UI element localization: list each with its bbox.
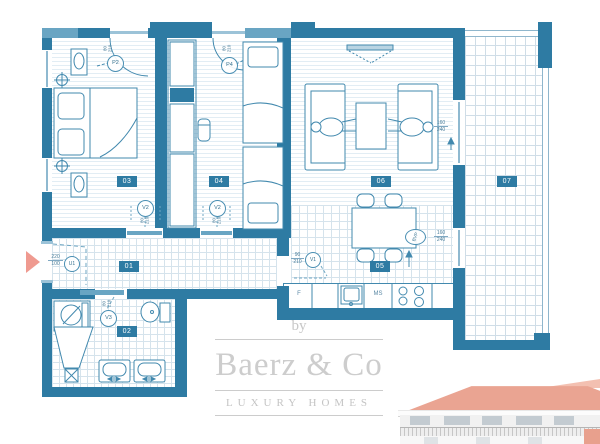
fridge-label: F — [291, 291, 307, 297]
wall-segment — [78, 28, 110, 38]
brand-watermark: by Baerz & Co LUXURY HOMES — [213, 316, 385, 419]
brand-prefix: by — [213, 316, 385, 336]
dim-v2-b: 80 210 — [212, 212, 223, 230]
dim-width: 160 — [434, 120, 448, 127]
marker-p2: P2 — [107, 55, 124, 72]
brand-rule — [215, 415, 383, 416]
brand-name: Baerz & Co — [213, 343, 385, 387]
dim-v1: 90 210 — [291, 252, 304, 265]
building-window — [528, 437, 542, 444]
window-top-bedroom-04 — [245, 28, 291, 38]
marker-v1: V1 — [305, 252, 321, 268]
dim-p2: 80 210 — [103, 40, 114, 58]
entrance-door-frame — [41, 241, 53, 244]
dim-height: 210 — [107, 295, 112, 313]
room-label-06: 06 — [371, 176, 391, 187]
terrace-wall-bottom — [453, 340, 550, 350]
sliding-door-v2-bedroom-04 — [201, 231, 232, 235]
wall-segment — [233, 228, 291, 238]
wall-segment — [42, 283, 52, 397]
dim-height: 240 — [434, 237, 448, 243]
dim-bvp: 160 240 — [434, 230, 448, 243]
building-window — [516, 416, 542, 425]
wall-segment — [52, 228, 126, 238]
window-glass-line — [46, 159, 48, 191]
marker-bvp: BVP — [405, 229, 426, 245]
dim-width: 220 — [48, 254, 63, 261]
wall-segment — [42, 88, 52, 158]
terrace-railing-right — [542, 30, 549, 333]
wall-segment — [291, 28, 465, 38]
wall-segment — [127, 289, 287, 299]
dim-height: 210 — [227, 40, 232, 58]
entrance-arrow-icon — [26, 251, 40, 273]
building-salmon-wall — [584, 429, 600, 444]
terrace-railing-top — [465, 30, 538, 37]
wall-segment — [148, 28, 212, 38]
room-label-05: 05 — [370, 261, 390, 272]
building-window — [410, 416, 430, 425]
dim-width: 90 — [291, 252, 304, 259]
dim-v2-a: 80 210 — [140, 212, 151, 230]
floor-bedroom-03 — [52, 38, 155, 228]
room-label-03: 03 — [117, 176, 137, 187]
wall-pier — [150, 22, 212, 28]
wall-bathroom-right — [175, 299, 187, 397]
wall-segment — [42, 38, 52, 50]
floor-hallway-01 — [52, 238, 277, 289]
brand-tagline: LUXURY HOMES — [213, 394, 385, 412]
wall-segment — [42, 192, 52, 242]
building-illustration — [396, 378, 600, 444]
terrace-pier-topright — [538, 22, 552, 68]
room-label-02: 02 — [117, 326, 137, 337]
wall-segment — [453, 28, 465, 100]
marker-bvp-text: BVP — [407, 230, 423, 243]
dishwasher-label: MS — [368, 291, 388, 297]
sliding-door-v2-bedroom-03 — [127, 231, 162, 235]
window-glass-line — [458, 102, 460, 163]
wall-bedroom-divider — [155, 38, 167, 228]
door-threshold-p2 — [110, 31, 148, 34]
wall-bedroom-living — [277, 38, 291, 228]
brand-rule — [215, 339, 383, 340]
building-window — [476, 437, 490, 444]
dim-living-window: 160 240 — [434, 120, 448, 133]
dim-height: 210 — [108, 40, 113, 58]
floor-terrace-07 — [465, 35, 542, 340]
wall-segment — [163, 228, 200, 238]
dim-height: 240 — [434, 127, 448, 133]
marker-v3: V3 — [100, 310, 117, 327]
building-window — [482, 416, 502, 425]
dim-width: 160 — [434, 230, 448, 237]
floor-plan-canvas: 01 02 03 04 05 06 07 P2 P4 V2 V2 V3 U1 V… — [0, 0, 600, 444]
wall-segment — [453, 268, 465, 340]
brand-rule — [215, 390, 383, 391]
dim-height: 210 — [145, 212, 150, 230]
door-threshold-p4 — [212, 31, 245, 34]
dim-v3: 80 210 — [102, 295, 113, 313]
dim-height: 100 — [48, 261, 63, 267]
wall-pier — [291, 22, 315, 28]
building-window — [444, 416, 470, 425]
wall-pier-hall-kitchen — [277, 238, 289, 256]
dim-height: 210 — [291, 259, 304, 265]
room-label-07: 07 — [497, 176, 517, 187]
building-roof — [396, 378, 600, 412]
wall-segment — [453, 165, 465, 228]
marker-u1: U1 — [64, 256, 80, 272]
marker-p4: P4 — [221, 57, 238, 74]
wall-bathroom-bottom — [42, 387, 187, 397]
building-window — [424, 437, 438, 444]
window-glass-line — [458, 230, 460, 266]
window-glass-line — [46, 51, 48, 87]
dim-u1: 220 100 — [48, 254, 63, 267]
dim-height: 210 — [217, 212, 222, 230]
room-label-04: 04 — [209, 176, 229, 187]
room-label-01: 01 — [119, 261, 139, 272]
building-window — [554, 416, 574, 425]
dim-p4: 80 210 — [222, 40, 233, 58]
window-top-bedroom-03 — [42, 28, 78, 38]
